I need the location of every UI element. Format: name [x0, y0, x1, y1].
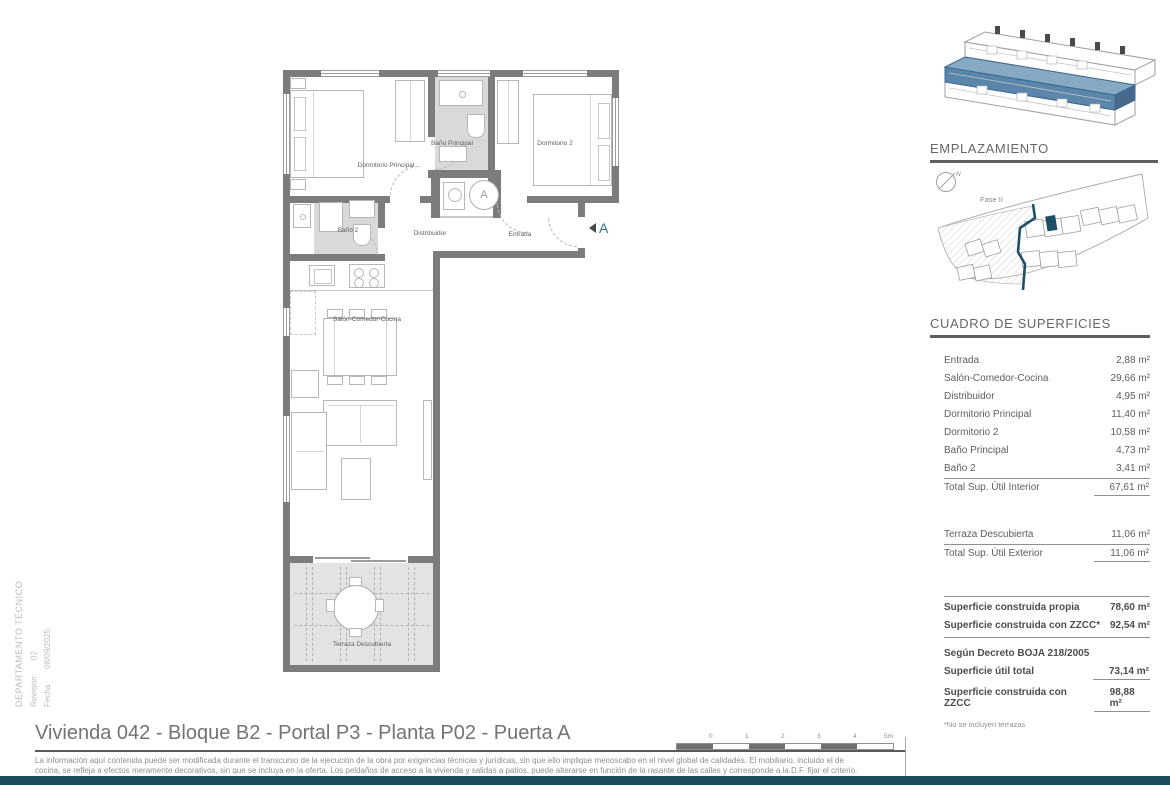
table-row: Terraza Descubierta11,06 m²: [944, 526, 1150, 545]
stove: [349, 264, 385, 288]
disclaimer-line-2: cocina, se refleja a efectos meramente d…: [35, 766, 897, 776]
wall: [378, 196, 385, 228]
chair: [349, 628, 362, 637]
wall: [585, 196, 619, 203]
table-row-total-exterior: Total Sup. Útil Exterior11,06 m²: [944, 545, 1150, 566]
wall: [433, 258, 440, 563]
shower: [439, 80, 483, 106]
wall: [420, 196, 431, 203]
wall: [428, 77, 435, 137]
chair: [375, 599, 384, 612]
toilet: [467, 114, 485, 138]
room-label-terraza: Terraza Descubierta: [302, 641, 422, 648]
window: [438, 70, 490, 77]
room-label-entrada: Entrada: [480, 231, 560, 238]
chair: [326, 599, 335, 612]
chair: [349, 376, 365, 385]
emplazamiento-heading: EMPLAZAMIENTO: [930, 141, 1158, 163]
department-label: DEPARTAMENTO TÉCNICO: [12, 535, 27, 707]
shower: [293, 204, 311, 228]
threshold: [440, 216, 493, 218]
scale-bar: 0 1 2 3 4 5m: [676, 733, 896, 751]
bottom-accent-bar: [0, 776, 1170, 785]
technical-department-block: DEPARTAMENTO TÉCNICO Revisión:02 Fecha:0…: [12, 535, 54, 707]
window: [612, 98, 619, 166]
north-compass-icon: N: [937, 171, 962, 192]
table-row: Superficie construida con ZZCC98,88 m²: [944, 684, 1150, 716]
chair: [327, 376, 343, 385]
door-arc: [390, 166, 420, 196]
water-heater-icon: A: [469, 180, 499, 210]
wall: [433, 251, 585, 258]
fase-label: Fase II: [980, 195, 1003, 204]
svg-text:N: N: [956, 171, 961, 178]
table-row: Baño 23,41 m²: [944, 460, 1150, 479]
table-row: Superficie útil total73,14 m²: [944, 663, 1150, 684]
entrance-marker-letter: A: [599, 220, 608, 236]
tv-unit: [423, 400, 432, 480]
room-label-distribuidor: Distribuidor: [390, 230, 470, 237]
building-axonometric: [925, 4, 1165, 136]
sofa: [323, 400, 397, 446]
superficies-heading: CUADRO DE SUPERFICIES: [930, 316, 1150, 338]
window: [283, 416, 290, 502]
surface-table: Entrada2,88 m² Salón-Comedor-Cocina29,66…: [944, 352, 1150, 729]
wall: [433, 556, 440, 672]
table-row: Distribuidor4,95 m²: [944, 388, 1150, 406]
chair: [371, 376, 387, 385]
table-row: Entrada2,88 m²: [944, 352, 1150, 370]
wall: [527, 196, 585, 203]
nightstand: [290, 78, 306, 89]
date-value: 08/09/2025: [43, 628, 52, 668]
plan-sheet: DEPARTAMENTO TÉCNICO Revisión:02 Fecha:0…: [0, 0, 1170, 785]
chaise-sofa: [291, 412, 327, 490]
floor-plan: A: [283, 70, 623, 676]
site-map: N Fase II: [930, 166, 1160, 306]
decreto-heading: Según Decreto BOJA 218/2005: [944, 638, 1150, 663]
date-line: Fecha:08/09/2025: [41, 535, 55, 707]
washing-machine-icon: [443, 182, 465, 210]
room-label-salon: Salón-Comedor-Cocina: [307, 316, 427, 323]
nightstand: [290, 179, 306, 190]
kitchen-cabinet: [290, 291, 316, 335]
sink: [349, 200, 375, 218]
dining-table: [323, 318, 397, 376]
title-rule: [35, 750, 905, 752]
kitchen-sink: [309, 265, 335, 286]
table-row-total-interior: Total Sup. Útil Interior67,61 m²: [944, 479, 1150, 500]
window: [283, 308, 290, 336]
construida-block: Superficie construida propia78,60 m² Sup…: [944, 596, 1150, 638]
room-label-dormitorio-2: Dormitorio 2: [515, 140, 595, 147]
armchair: [291, 370, 319, 398]
window: [283, 94, 290, 174]
wall: [578, 203, 585, 217]
wall: [428, 170, 501, 178]
terrace-table: [333, 585, 379, 631]
window: [523, 70, 587, 77]
disclaimer-line-1: La información aquí contenida puede ser …: [35, 756, 897, 766]
table-footnote: *No se incluyen terrazas: [944, 720, 1150, 729]
wardrobe: [497, 80, 519, 144]
chair: [349, 577, 362, 586]
room-label-bano-2: Baño 2: [308, 227, 388, 234]
table-row: Dormitorio Principal11,40 m²: [944, 406, 1150, 424]
section-arrow-icon: [589, 223, 596, 233]
table-row: Salón-Comedor-Cocina29,66 m²: [944, 370, 1150, 388]
table-row: Baño Principal4,73 m²: [944, 442, 1150, 460]
revision-line: Revisión:02: [27, 535, 41, 707]
window: [321, 70, 379, 77]
table-row: Dormitorio 210,58 m²: [944, 424, 1150, 442]
wall: [431, 178, 440, 218]
table-row: Superficie construida propia78,60 m²: [944, 599, 1150, 617]
sliding-door: [313, 556, 408, 563]
entrance-marker: A: [589, 220, 608, 236]
revision-value: 02: [29, 651, 38, 660]
door-arc: [497, 203, 527, 233]
wardrobe: [395, 80, 425, 142]
footer-divider: [905, 737, 906, 777]
page-title: Vivienda 042 - Bloque B2 - Portal P3 - P…: [35, 722, 571, 745]
wall: [283, 665, 440, 672]
coffee-table: [341, 458, 371, 500]
table-row: Superficie construida con ZZCC*92,54 m²: [944, 617, 1150, 635]
room-label-bano-principal: Baño Principal: [412, 140, 492, 147]
room-label-dormitorio-principal: Dormitorio Principal: [326, 162, 446, 169]
sink: [439, 146, 467, 162]
